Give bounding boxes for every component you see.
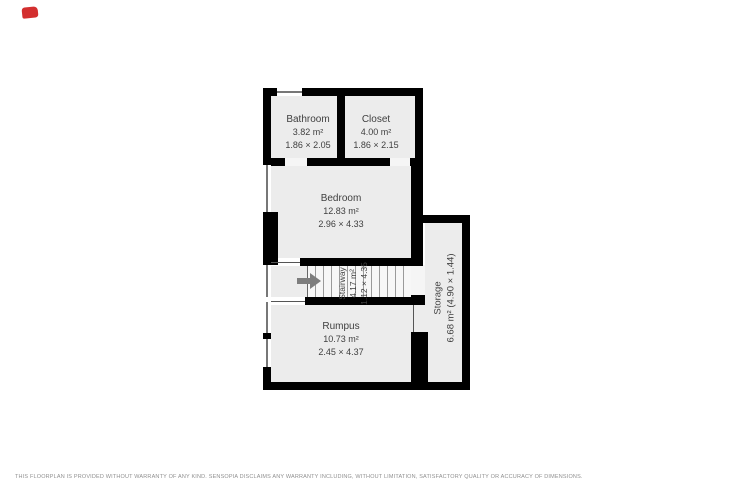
- bedroom-dims: 2.96 × 4.33: [301, 218, 381, 231]
- wall-right-bedroom: [411, 166, 423, 265]
- floorplan-page: { "page": { "background": "#ffffff", "wa…: [0, 0, 750, 500]
- storage-area-dims: 6.68 m² (4.90 × 1.44): [444, 254, 457, 343]
- closet-area: 4.00 m²: [337, 126, 415, 139]
- storage-label: Storage 6.68 m² (4.90 × 1.44): [424, 218, 464, 378]
- rumpus-area: 10.73 m²: [301, 333, 381, 346]
- stair-landing-doorway: [411, 265, 425, 295]
- closet-dims: 1.86 × 2.15: [337, 139, 415, 152]
- stairway-dims: 1.12 × 4.35: [359, 262, 370, 305]
- bathroom-area: 3.82 m²: [269, 126, 347, 139]
- bathroom-label: Bathroom 3.82 m² 1.86 × 2.05: [269, 113, 347, 152]
- wall-bath-bedroom-2: [307, 158, 390, 166]
- closet-name: Closet: [337, 113, 415, 126]
- bathroom-dims: 1.86 × 2.05: [269, 139, 347, 152]
- stairs-direction-arrow-head-icon: [310, 273, 321, 289]
- opening-edge-line: [413, 305, 414, 332]
- closet-doorway: [390, 158, 410, 166]
- bathroom-name: Bathroom: [269, 113, 347, 126]
- wall-stair-storage-pier: [411, 295, 425, 305]
- rumpus-dims: 2.45 × 4.37: [301, 346, 381, 359]
- rumpus-name: Rumpus: [301, 320, 381, 333]
- stairway-area: 4.17 m²: [348, 262, 359, 305]
- stairway-label: Stairway 4.17 m² 1.12 × 4.35: [333, 248, 373, 318]
- window-left-stairway: [263, 265, 271, 297]
- bedroom-label: Bedroom 12.83 m² 2.96 × 4.33: [301, 192, 381, 231]
- rumpus-label: Rumpus 10.73 m² 2.45 × 4.37: [301, 320, 381, 359]
- stairs-direction-arrow-icon: [297, 278, 310, 284]
- stair-entry-bottom-line: [271, 301, 305, 302]
- wall-bottom: [263, 382, 470, 390]
- wall-left-pier: [263, 212, 278, 265]
- bedroom-name: Bedroom: [301, 192, 381, 205]
- closet-label: Closet 4.00 m² 1.86 × 2.15: [337, 113, 415, 152]
- stair-entry-top-line: [271, 262, 300, 263]
- window-left-bedroom: [263, 165, 271, 212]
- window-top-bathroom: [277, 88, 302, 96]
- window-left-rumpus-2: [263, 339, 271, 367]
- stairway-name: Stairway: [337, 262, 348, 305]
- bathroom-doorway: [285, 158, 307, 166]
- floorplan-canvas: Bathroom 3.82 m² 1.86 × 2.05 Closet 4.00…: [0, 0, 750, 500]
- red-logo-mark: [21, 6, 38, 19]
- window-left-rumpus-1: [263, 302, 271, 333]
- wall-bath-bedroom-3: [410, 158, 423, 166]
- storage-name: Storage: [431, 254, 444, 343]
- wall-right-closet: [415, 88, 423, 166]
- bedroom-area: 12.83 m²: [301, 205, 381, 218]
- disclaimer-text: THIS FLOORPLAN IS PROVIDED WITHOUT WARRA…: [15, 474, 583, 480]
